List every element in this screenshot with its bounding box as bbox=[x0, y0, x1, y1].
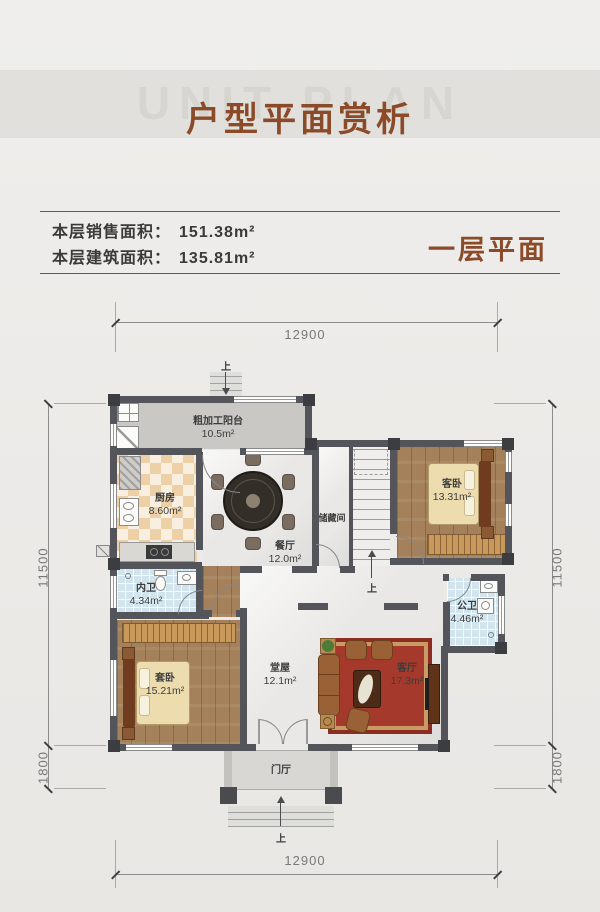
nightstand bbox=[481, 526, 494, 539]
dim-value-left-main: 11500 bbox=[36, 533, 51, 603]
wall bbox=[441, 646, 448, 751]
porch-arrow-line bbox=[280, 800, 281, 826]
wall bbox=[349, 447, 353, 566]
corner-post bbox=[438, 740, 450, 752]
wall bbox=[390, 440, 397, 534]
build-area-row: 本层建筑面积：135.81m² bbox=[52, 244, 256, 268]
wall bbox=[340, 566, 355, 573]
wall bbox=[292, 566, 314, 573]
extension-line bbox=[115, 840, 116, 888]
window bbox=[126, 744, 172, 751]
corner-post bbox=[108, 394, 120, 406]
dining-chair bbox=[211, 514, 224, 530]
window bbox=[110, 424, 117, 446]
build-area-label: 本层建筑面积： bbox=[52, 250, 171, 267]
sales-area-row: 本层销售面积：151.38m² bbox=[52, 218, 256, 242]
corner-post bbox=[388, 438, 400, 450]
porch-rail-left bbox=[224, 750, 232, 788]
extension-line bbox=[115, 302, 116, 352]
porch-steps bbox=[228, 806, 334, 827]
extension-line bbox=[494, 788, 546, 789]
dining-centerpiece bbox=[246, 494, 260, 508]
room-label-kitchen: 厨房8.60m² bbox=[125, 492, 205, 519]
corner-post bbox=[502, 553, 514, 565]
room-label-living-room: 客厅17.3m² bbox=[372, 662, 442, 689]
dining-chair bbox=[282, 514, 295, 530]
burner bbox=[161, 548, 169, 556]
dim-value-left-sub: 1800 bbox=[36, 733, 51, 803]
room-label-foyer: 门厅 bbox=[246, 764, 316, 777]
wall bbox=[110, 448, 202, 455]
armchair bbox=[371, 640, 393, 660]
nightstand bbox=[122, 727, 135, 740]
sales-area-value: 151.38m² bbox=[179, 224, 256, 241]
window bbox=[110, 660, 117, 716]
porch-rail-right bbox=[330, 750, 338, 788]
porch-column-right bbox=[325, 787, 342, 804]
suite-wardrobe bbox=[122, 623, 236, 643]
dim-value-right-sub: 1800 bbox=[550, 733, 565, 803]
up-label-entry: 上 bbox=[213, 358, 239, 373]
door-leaf bbox=[258, 719, 260, 744]
stair-break-dashed bbox=[354, 449, 388, 475]
window bbox=[505, 452, 512, 472]
room-label-suite-bedroom: 套卧15.21m² bbox=[130, 672, 200, 699]
porch-arrow-head bbox=[277, 796, 285, 803]
flue bbox=[96, 545, 110, 557]
floor-drain bbox=[488, 632, 494, 638]
info-rule-bottom bbox=[40, 273, 560, 274]
extension-line bbox=[54, 403, 106, 404]
guest-wardrobe bbox=[427, 534, 508, 555]
room-label-inner-bath: 内卫4.34m² bbox=[106, 582, 186, 609]
room-label-public-bath: 公卫4.46m² bbox=[432, 600, 502, 627]
dim-value-top: 12900 bbox=[250, 327, 360, 342]
wall bbox=[110, 562, 202, 569]
dim-value-bottom: 12900 bbox=[250, 853, 360, 868]
dim-value-right-main: 11500 bbox=[550, 533, 565, 603]
window bbox=[110, 484, 117, 528]
corner-post bbox=[303, 394, 315, 406]
wall bbox=[202, 610, 212, 617]
floor-tag: 一层平面 bbox=[428, 228, 548, 267]
stair-arrow-head bbox=[368, 550, 376, 557]
room-label-storage: 储藏间 bbox=[300, 513, 364, 525]
side-table-dial bbox=[323, 717, 332, 726]
sofa-cushion-line bbox=[318, 674, 340, 675]
window bbox=[505, 504, 512, 526]
room-label-main-hall: 堂屋12.1m² bbox=[240, 662, 320, 689]
window bbox=[352, 744, 418, 751]
stair-arrow-line bbox=[371, 556, 372, 578]
dim-line-top bbox=[115, 322, 497, 323]
extension-line bbox=[497, 840, 498, 888]
dim-line-bottom bbox=[115, 874, 497, 875]
kitchen-cabinet bbox=[119, 456, 141, 490]
entry-arrow-head bbox=[222, 388, 230, 395]
armchair bbox=[345, 640, 367, 660]
room-label-guest-bedroom: 客卧13.31m² bbox=[412, 478, 492, 505]
porch-column-left bbox=[220, 787, 237, 804]
room-label-balcony: 粗加工阳台10.5m² bbox=[168, 415, 268, 442]
info-rule-top bbox=[40, 211, 560, 212]
window bbox=[234, 396, 296, 403]
sink-basin bbox=[182, 574, 191, 581]
corner-post bbox=[305, 438, 317, 450]
sofa-cushion-line bbox=[318, 695, 340, 696]
fridge bbox=[115, 426, 139, 450]
page-title: 户型平面赏析 bbox=[0, 92, 600, 141]
corner-post bbox=[502, 438, 514, 450]
extension-line bbox=[494, 745, 546, 746]
up-label-porch: 上 bbox=[268, 830, 294, 845]
dining-chair bbox=[282, 474, 295, 490]
build-area-value: 135.81m² bbox=[179, 250, 256, 267]
corner-post bbox=[108, 558, 120, 570]
sofa-three-seat bbox=[318, 654, 340, 716]
wall bbox=[298, 603, 328, 610]
balcony-cabinet bbox=[117, 402, 139, 422]
floorplan-poster: UNIT PLAN 户型平面赏析 本层销售面积：151.38m² 本层建筑面积：… bbox=[0, 0, 600, 912]
plant-icon bbox=[322, 640, 334, 652]
door-leaf bbox=[306, 719, 308, 744]
room-label-dining: 餐厅12.0m² bbox=[245, 540, 325, 567]
extension-line bbox=[497, 302, 498, 352]
window bbox=[464, 440, 506, 447]
wall bbox=[384, 603, 418, 610]
up-label-stair: 上 bbox=[359, 580, 385, 595]
corner-post bbox=[495, 642, 507, 654]
extension-line bbox=[54, 788, 106, 789]
extension-line bbox=[54, 745, 106, 746]
sales-area-label: 本层销售面积： bbox=[52, 224, 171, 241]
wall bbox=[240, 566, 262, 573]
burner bbox=[150, 548, 158, 556]
extension-line bbox=[494, 403, 546, 404]
window bbox=[246, 448, 304, 455]
sink-basin bbox=[484, 583, 493, 589]
corner-post bbox=[108, 740, 120, 752]
floor-drain bbox=[125, 573, 131, 579]
